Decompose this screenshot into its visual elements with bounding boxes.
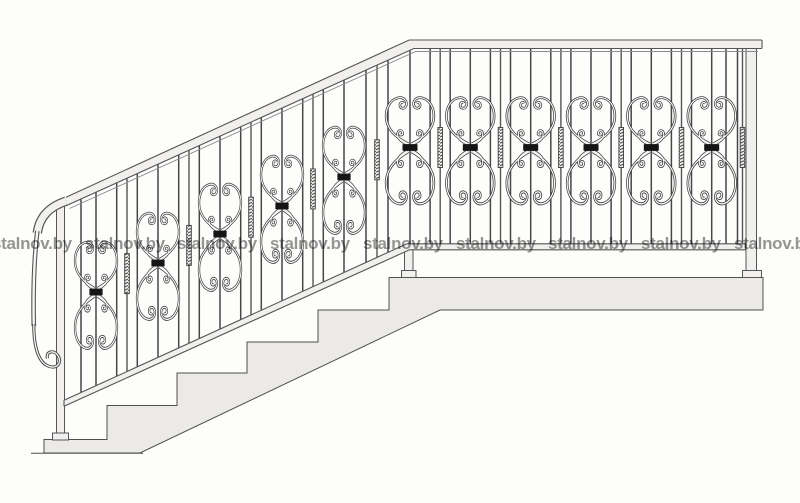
end-post [746, 48, 757, 271]
twisted-bar-twist [559, 128, 564, 168]
twisted-bar-twist [679, 128, 684, 168]
handrail-shadow-line [70, 52, 759, 209]
twisted-bar-twist [311, 169, 316, 209]
twisted-bar-twist [375, 140, 380, 180]
handrail-volute-scroll-inner [34, 324, 60, 367]
railing-drawing: stalnov.by stalnov.by stalnov.by stalnov… [0, 0, 800, 503]
start-post-base [53, 433, 69, 440]
twisted-bar-twist [498, 128, 503, 168]
handrail-outline [66, 40, 762, 206]
end-post-base [743, 271, 762, 278]
twisted-bar-twist [438, 128, 443, 168]
handrail-volute-scroll [34, 324, 60, 367]
twisted-bar-twist [740, 128, 745, 168]
twisted-bar-twist [187, 225, 192, 265]
twisted-bar-twist [619, 128, 624, 168]
corner-post-base [402, 271, 417, 278]
twisted-bar-twist [249, 197, 254, 237]
twisted-bar-twist [125, 254, 130, 294]
handrail [66, 40, 762, 206]
rails [34, 40, 762, 406]
railing-drawing-art [0, 0, 800, 503]
start-post [57, 202, 65, 433]
